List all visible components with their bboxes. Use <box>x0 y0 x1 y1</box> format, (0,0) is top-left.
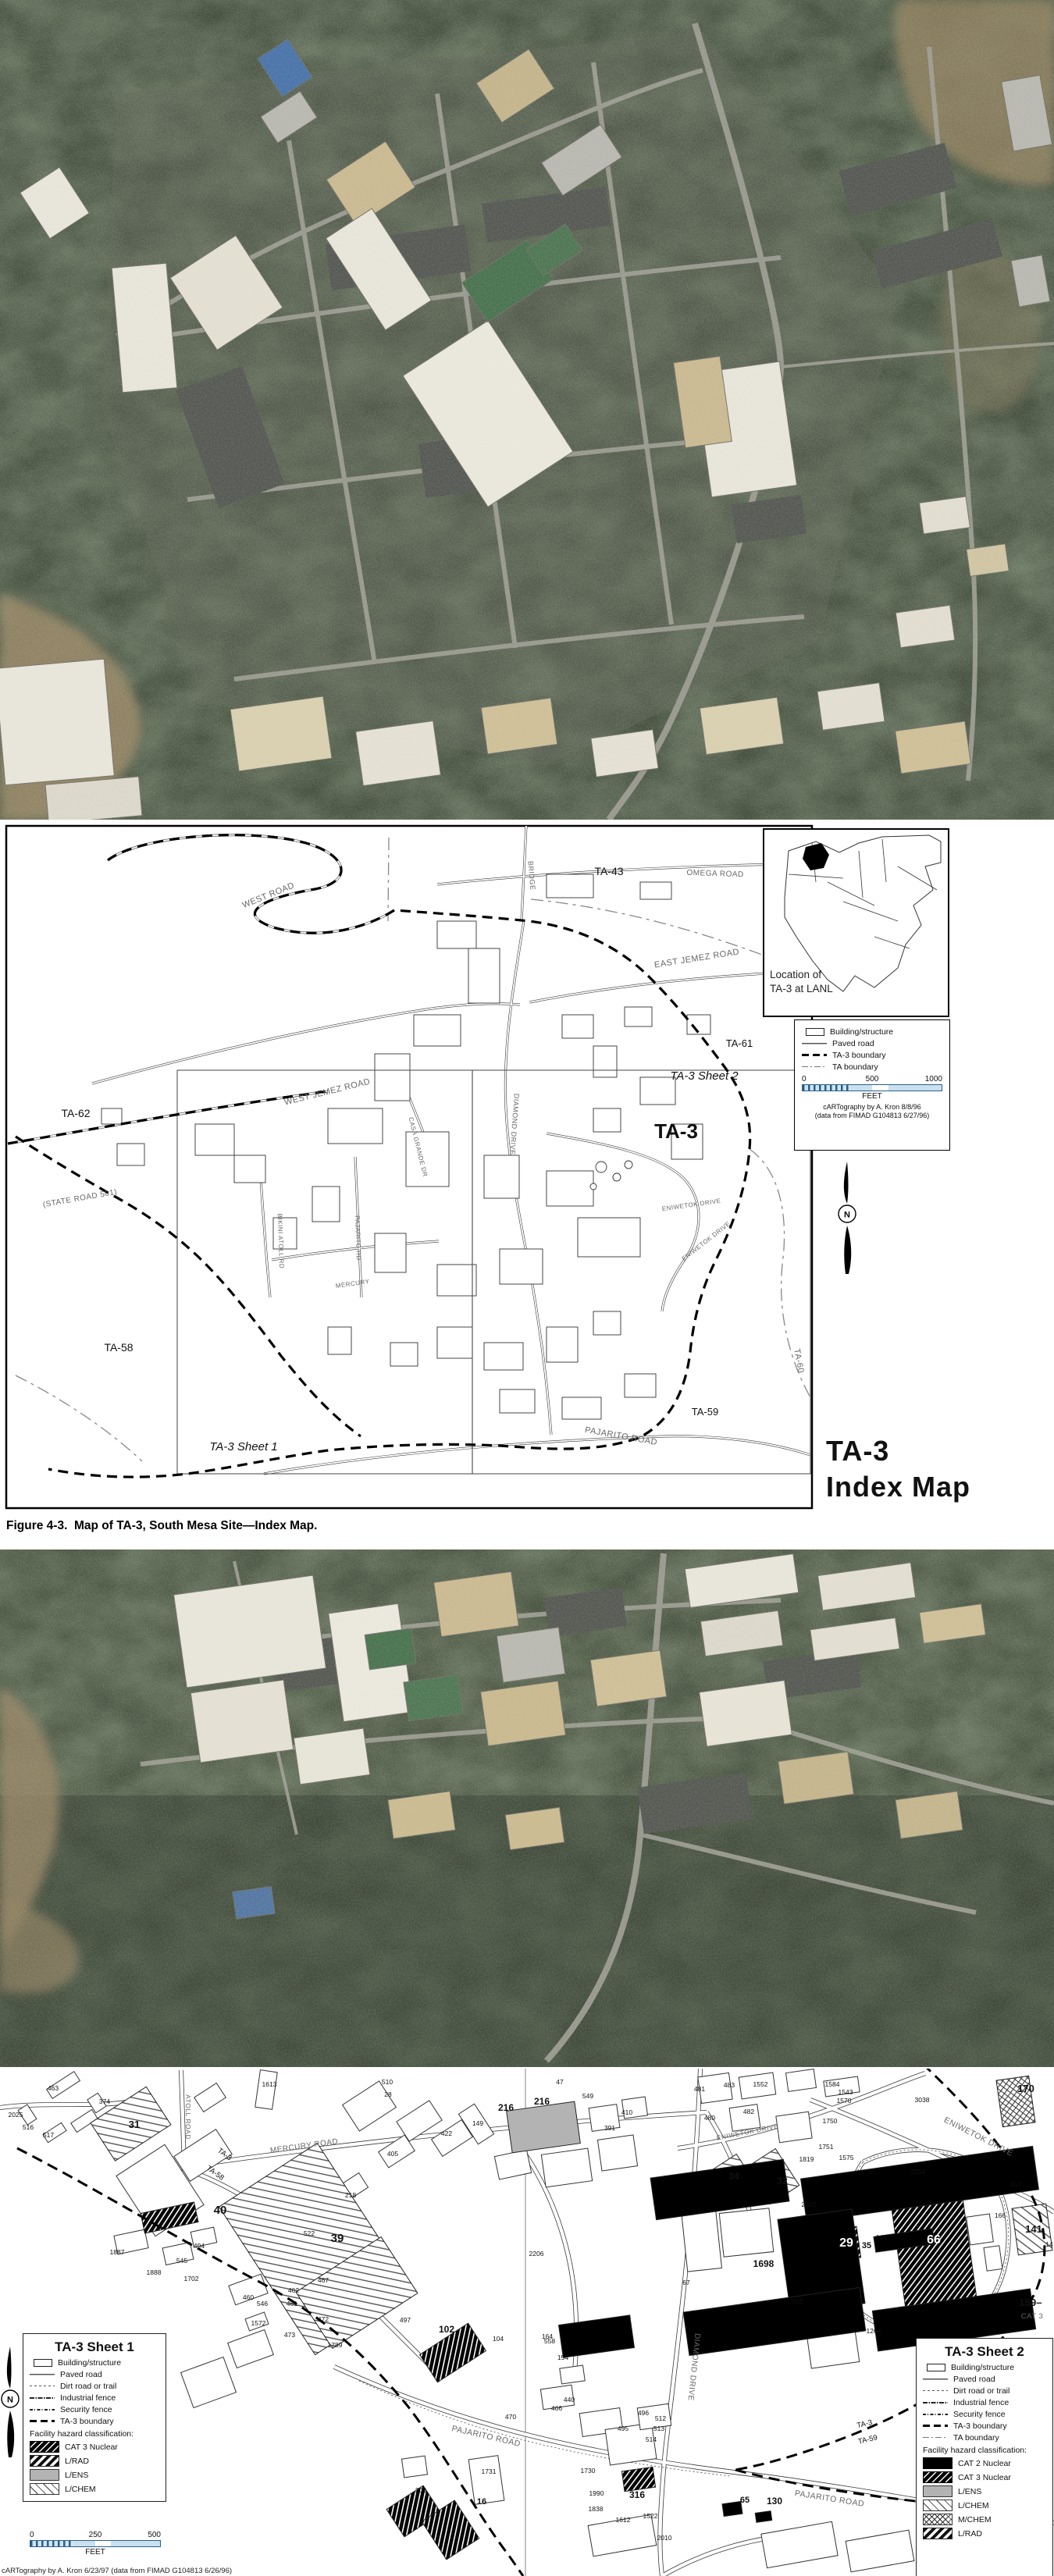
index-north-arrow: N <box>831 1157 863 1278</box>
document-page: WEST ROADTA-43OMEGA ROADBRIDGETA-62WEST … <box>0 0 1054 2576</box>
map-label: 481 <box>694 2085 705 2093</box>
map-label: 159– <box>1020 2297 1042 2308</box>
map-label: 1584 <box>825 2080 840 2088</box>
map-label: 1990 <box>589 2489 604 2497</box>
legend-item-lrad: L/RAD <box>30 2455 159 2467</box>
map-label: 35 <box>862 2241 871 2250</box>
map-label: 1750 <box>823 2117 838 2125</box>
map-label: 316 <box>629 2489 645 2500</box>
legend-item-ta3: TA-3 boundary <box>802 1051 942 1060</box>
lrad-swatch <box>30 2455 59 2467</box>
ta-swatch <box>802 1063 827 1071</box>
map-label: 216 <box>498 2102 514 2113</box>
map-label: 1575 <box>839 2154 854 2161</box>
map-label: 473 <box>284 2331 295 2339</box>
legend-item-label: L/ENS <box>65 2471 88 2480</box>
cat2-swatch <box>923 2457 953 2469</box>
map-label: 47 <box>556 2078 564 2086</box>
inset-caption-line1: Location of <box>770 968 833 982</box>
legend-item-label: Security fence <box>60 2405 112 2414</box>
scale-end: 1000 <box>925 1075 942 1083</box>
legend-item-label: Dirt road or trail <box>953 2386 1009 2396</box>
map-label: 549 <box>582 2092 593 2100</box>
building-130-cat2 <box>755 2511 771 2523</box>
map-label: 66 <box>927 2233 941 2247</box>
map-label: 463 <box>48 2084 59 2092</box>
map-label: 1702 <box>184 2275 199 2282</box>
map-label: CAT 3 <box>1021 2312 1044 2321</box>
map-label: 496 <box>638 2409 649 2417</box>
map-label: 2206 <box>529 2250 544 2258</box>
legend-item-cat3: CAT 3 Nuclear <box>30 2441 159 2453</box>
sheet2-legend: TA-3 Sheet 2 Building/structurePaved roa… <box>916 2338 1053 2576</box>
legend-item-paved: Paved road <box>923 2375 1046 2384</box>
map-label: 16 <box>477 2497 486 2507</box>
index-legend-rows: Building/structurePaved roadTA-3 boundar… <box>802 1027 942 1072</box>
cat3-swatch <box>923 2471 953 2483</box>
map-label: 422 <box>441 2129 452 2137</box>
legend-item-ta: TA boundary <box>802 1062 942 1072</box>
legend-item-cat2: CAT 2 Nuclear <box>923 2457 1046 2469</box>
map-label: 29 <box>839 2236 853 2250</box>
scale-mid: 250 <box>89 2531 102 2539</box>
map-label: TA-62 <box>61 1107 90 1119</box>
map-label: 466 <box>551 2404 562 2412</box>
legend-item-industrial: Industrial fence <box>30 2393 159 2403</box>
lens-swatch <box>923 2485 953 2497</box>
legend-item-mchem: M/CHEM <box>923 2514 1046 2525</box>
sheet2-legend-rows: Building/structurePaved roadDirt road or… <box>923 2363 1046 2443</box>
legend-item-lens: L/ENS <box>923 2485 1046 2497</box>
map-label: 470 <box>505 2413 516 2421</box>
paved-swatch <box>802 1040 827 1048</box>
legend-item-label: Paved road <box>60 2370 102 2379</box>
security-swatch <box>30 2406 55 2414</box>
legend-item-dirt: Dirt road or trail <box>30 2382 159 2391</box>
legend-item-lchem: L/CHEM <box>923 2500 1046 2511</box>
map-label: 216 <box>534 2096 550 2107</box>
map-label: 1888 <box>147 2268 162 2276</box>
map-label: 1751 <box>819 2143 834 2151</box>
lchem-swatch <box>923 2500 953 2511</box>
legend-item-security: Security fence <box>923 2410 1046 2419</box>
legend-item-label: TA-3 boundary <box>953 2421 1007 2431</box>
lens-swatch <box>30 2469 59 2481</box>
legend-item-ta: TA boundary <box>923 2433 1046 2443</box>
index-map-title: TA-3 Index Map <box>826 1433 970 1505</box>
sheet1-hazard-title: Facility hazard classification: <box>30 2429 159 2439</box>
photo2-grain <box>0 1550 1054 2067</box>
credit-line1: cARTography by A. Kron 8/8/96 <box>802 1103 942 1112</box>
map-label: 14 <box>1045 2240 1053 2248</box>
legend-item-security: Security fence <box>30 2405 159 2414</box>
sheet2-hazard-rows: CAT 2 NuclearCAT 3 NuclearL/ENSL/CHEMM/C… <box>923 2457 1046 2539</box>
legend-item-label: L/CHEM <box>958 2501 989 2510</box>
legend-item-label: TA-3 boundary <box>60 2417 114 2426</box>
scale-start: 0 <box>30 2531 34 2539</box>
map-label: 462 <box>288 2286 299 2294</box>
legend-item-label: Paved road <box>832 1039 874 1048</box>
map-label: 2010 <box>657 2534 672 2542</box>
scale-end: 500 <box>148 2531 161 2539</box>
map-label: 460 <box>243 2293 254 2301</box>
map-label: 1613 <box>262 2080 277 2088</box>
legend-item-label: Industrial fence <box>60 2393 116 2403</box>
dirt-swatch <box>923 2387 948 2395</box>
north-letter: N <box>7 2396 13 2405</box>
scale-unit: FEET <box>802 1092 942 1101</box>
map-label: 410 <box>621 2108 632 2116</box>
map-label: 32 <box>777 2176 788 2186</box>
index-title-line2: Index Map <box>826 1469 970 1505</box>
aerial-photo-bottom <box>0 1550 1054 2067</box>
cat3-swatch <box>30 2441 59 2453</box>
map-label: 2254 <box>911 2168 926 2176</box>
map-label: 494 <box>194 2242 205 2250</box>
map-label: 480 <box>704 2114 715 2122</box>
legend-item-label: Building/structure <box>951 2363 1014 2372</box>
map-label: 1819 <box>799 2155 814 2163</box>
sheet-credit: cARTography by A. Kron 6/23/97 (data fro… <box>2 2567 232 2575</box>
map-label: 1731 <box>482 2467 497 2475</box>
ta-swatch <box>923 2434 948 2442</box>
building-swatch <box>927 2364 945 2371</box>
map-label: 39 <box>331 2232 344 2245</box>
map-label: 512 <box>655 2414 666 2422</box>
map-label: 1552 <box>753 2080 768 2088</box>
legend-item-label: Industrial fence <box>953 2398 1009 2407</box>
map-label: TA-3 Sheet 2 <box>670 1069 739 1083</box>
sheet2-legend-title: TA-3 Sheet 2 <box>923 2344 1046 2360</box>
building-316-cat3 <box>621 2467 655 2491</box>
map-label: 374 <box>99 2097 110 2105</box>
legend-item-lchem: L/CHEM <box>30 2483 159 2495</box>
legend-item-ta3: TA-3 boundary <box>923 2421 1046 2431</box>
map-label: 1730 <box>581 2467 596 2475</box>
map-label: 522 <box>304 2229 315 2237</box>
map-label: 467 <box>318 2276 329 2284</box>
map-label: 517 <box>43 2131 54 2139</box>
map-label: 65 <box>740 2496 750 2505</box>
legend-item-label: Building/structure <box>58 2358 121 2368</box>
map-label: ATOLL ROAD <box>184 2094 192 2140</box>
map-label: 1543 <box>839 2088 853 2096</box>
map-label: 102 <box>439 2324 454 2335</box>
legend-item-lens: L/ENS <box>30 2469 159 2481</box>
map-label: 1522 <box>643 2512 658 2520</box>
map-label: 104 <box>493 2335 504 2343</box>
legend-item-label: L/RAD <box>958 2529 982 2539</box>
legend-item-ta3: TA-3 boundary <box>30 2417 159 2426</box>
map-label: 1570 <box>837 2097 852 2105</box>
sheet-north-arrow: N <box>0 2343 26 2460</box>
scale-bar <box>802 1084 942 1091</box>
map-label: 513 <box>653 2425 664 2432</box>
map-label: 497 <box>400 2316 411 2324</box>
ta3-swatch <box>30 2418 55 2425</box>
scale-mid: 500 <box>866 1075 879 1083</box>
ta3-swatch <box>923 2422 948 2430</box>
map-label: TA-58 <box>104 1341 133 1354</box>
legend-item-building: Building/structure <box>923 2363 1046 2372</box>
map-label: 166 <box>995 2211 1006 2219</box>
legend-item-label: M/CHEM <box>958 2515 992 2524</box>
map-label: 218 <box>345 2191 356 2199</box>
map-label: 1572 <box>251 2319 266 2327</box>
map-label: TA-61 <box>726 1037 753 1049</box>
sheet1-legend: TA-3 Sheet 1 Building/structurePaved roa… <box>23 2333 166 2502</box>
map-label: TA-3 Sheet 1 <box>209 1440 277 1453</box>
legend-item-label: CAT 3 Nuclear <box>65 2443 118 2452</box>
map-label: 495 <box>618 2425 628 2432</box>
inset-caption: Location of TA-3 at LANL <box>770 968 833 995</box>
map-label: 545 <box>176 2257 187 2265</box>
map-label: 558 <box>544 2337 555 2345</box>
map-label: 149 <box>472 2119 483 2127</box>
map-label: 2002 <box>802 2201 817 2208</box>
map-label: 546 <box>257 2300 268 2307</box>
map-label: 141 <box>1025 2223 1042 2235</box>
map-label: 2025 <box>9 2111 23 2119</box>
sheet1-legend-rows: Building/structurePaved roadDirt road or… <box>30 2358 159 2426</box>
legend-item-label: L/ENS <box>958 2487 981 2496</box>
map-label: 28 <box>384 2090 392 2098</box>
legend-item-dirt: Dirt road or trail <box>923 2386 1046 2396</box>
map-label: 391 <box>604 2124 615 2132</box>
paved-swatch <box>30 2371 55 2379</box>
scale-bar <box>30 2540 161 2547</box>
inset-caption-line2: TA-3 at LANL <box>770 982 833 996</box>
map-label: 405 <box>387 2150 398 2158</box>
legend-item-label: TA boundary <box>953 2433 999 2443</box>
legend-item-industrial: Industrial fence <box>923 2398 1046 2407</box>
legend-item-paved: Paved road <box>30 2370 159 2379</box>
map-label: 483 <box>724 2081 735 2089</box>
map-label: 3038 <box>915 2096 930 2104</box>
map-label: 40 <box>214 2204 227 2217</box>
map-label: 148 <box>876 2233 887 2241</box>
map-label: 206 <box>415 2486 426 2494</box>
dirt-swatch <box>30 2382 55 2390</box>
north-letter: N <box>844 1211 850 1220</box>
map-label: TA-59 <box>692 1406 718 1418</box>
sheet-scale-bar: 0 250 500 FEET <box>30 2531 161 2556</box>
scale-start: 0 <box>802 1075 807 1083</box>
map-label: 1698 <box>753 2258 774 2269</box>
legend-item-building: Building/structure <box>30 2358 159 2368</box>
security-swatch <box>923 2411 948 2418</box>
legend-item-label: CAT 2 Nuclear <box>958 2459 1011 2468</box>
lrad-swatch <box>923 2528 953 2539</box>
legend-item-label: Dirt road or trail <box>60 2382 116 2391</box>
sheet2-hazard-title: Facility hazard classification: <box>923 2446 1046 2455</box>
map-label: 514 <box>646 2435 657 2443</box>
building-216-lens <box>507 2101 581 2153</box>
index-map-legend: Building/structurePaved roadTA-3 boundar… <box>794 1019 950 1151</box>
mchem-swatch <box>923 2514 953 2525</box>
legend-item-building: Building/structure <box>802 1027 942 1037</box>
map-label: 516 <box>23 2123 34 2131</box>
legend-item-label: Security fence <box>953 2410 1006 2419</box>
legend-item-cat3: CAT 3 Nuclear <box>923 2471 1046 2483</box>
scale-unit: FEET <box>30 2548 161 2556</box>
map-label: 31 <box>129 2119 140 2130</box>
ta3-swatch <box>802 1051 827 1059</box>
map-label: 440 <box>564 2396 575 2403</box>
aerial-photo-top <box>0 0 1054 820</box>
map-label: 502 <box>792 2297 803 2305</box>
building-swatch <box>806 1028 824 1036</box>
index-scale-bar: 0 500 1000 FEET <box>802 1075 942 1101</box>
legend-item-label: Building/structure <box>830 1027 893 1037</box>
map-label: 482 <box>743 2108 754 2115</box>
map-label: 461 <box>287 2300 297 2307</box>
index-map: WEST ROADTA-43OMEGA ROADBRIDGETA-62WEST … <box>0 824 1054 1510</box>
sheet1-hazard-rows: CAT 3 NuclearL/RADL/ENSL/CHEM <box>30 2441 159 2495</box>
legend-item-label: L/RAD <box>65 2457 89 2466</box>
figure-caption: Figure 4-3. Map of TA-3, South Mesa Site… <box>6 1519 317 1533</box>
map-label: 1838 <box>589 2505 604 2513</box>
legend-item-paved: Paved road <box>802 1039 942 1048</box>
index-credit: cARTography by A. Kron 8/8/96 (data from… <box>802 1103 942 1121</box>
map-label: 130 <box>767 2496 782 2507</box>
industrial-swatch <box>30 2394 55 2402</box>
index-title-line1: TA-3 <box>826 1433 970 1469</box>
paved-swatch <box>923 2375 948 2383</box>
map-label: 154 <box>557 2354 568 2361</box>
map-label: 510 <box>382 2078 393 2086</box>
lchem-swatch <box>30 2483 59 2495</box>
map-label: 1612 <box>616 2516 631 2524</box>
map-label: 170 <box>1017 2083 1034 2094</box>
map-label: 1789 <box>328 2341 343 2349</box>
map-label: 34 <box>728 2171 739 2182</box>
sheet1-legend-title: TA-3 Sheet 1 <box>30 2339 159 2355</box>
credit-line2: (data from FIMAD G104813 6/27/96) <box>802 1112 942 1120</box>
map-label: TA-43 <box>594 865 623 877</box>
legend-item-label: TA-3 boundary <box>832 1051 886 1060</box>
map-label: 1887 <box>110 2248 125 2256</box>
map-label: TA-3 <box>654 1119 698 1143</box>
map-label: 67 <box>682 2279 690 2286</box>
industrial-swatch <box>923 2399 948 2407</box>
legend-item-label: Paved road <box>953 2375 995 2384</box>
map-label: 317 <box>1010 2180 1021 2188</box>
photo-grain <box>0 0 1054 820</box>
legend-item-label: CAT 3 Nuclear <box>958 2473 1011 2482</box>
legend-item-label: TA boundary <box>832 1062 878 1072</box>
legend-item-label: L/CHEM <box>65 2485 96 2494</box>
map-label: 472 <box>318 2315 329 2323</box>
building-swatch <box>34 2359 52 2367</box>
legend-item-lrad: L/RAD <box>923 2528 1046 2539</box>
map-label: 1264 <box>867 2327 881 2335</box>
